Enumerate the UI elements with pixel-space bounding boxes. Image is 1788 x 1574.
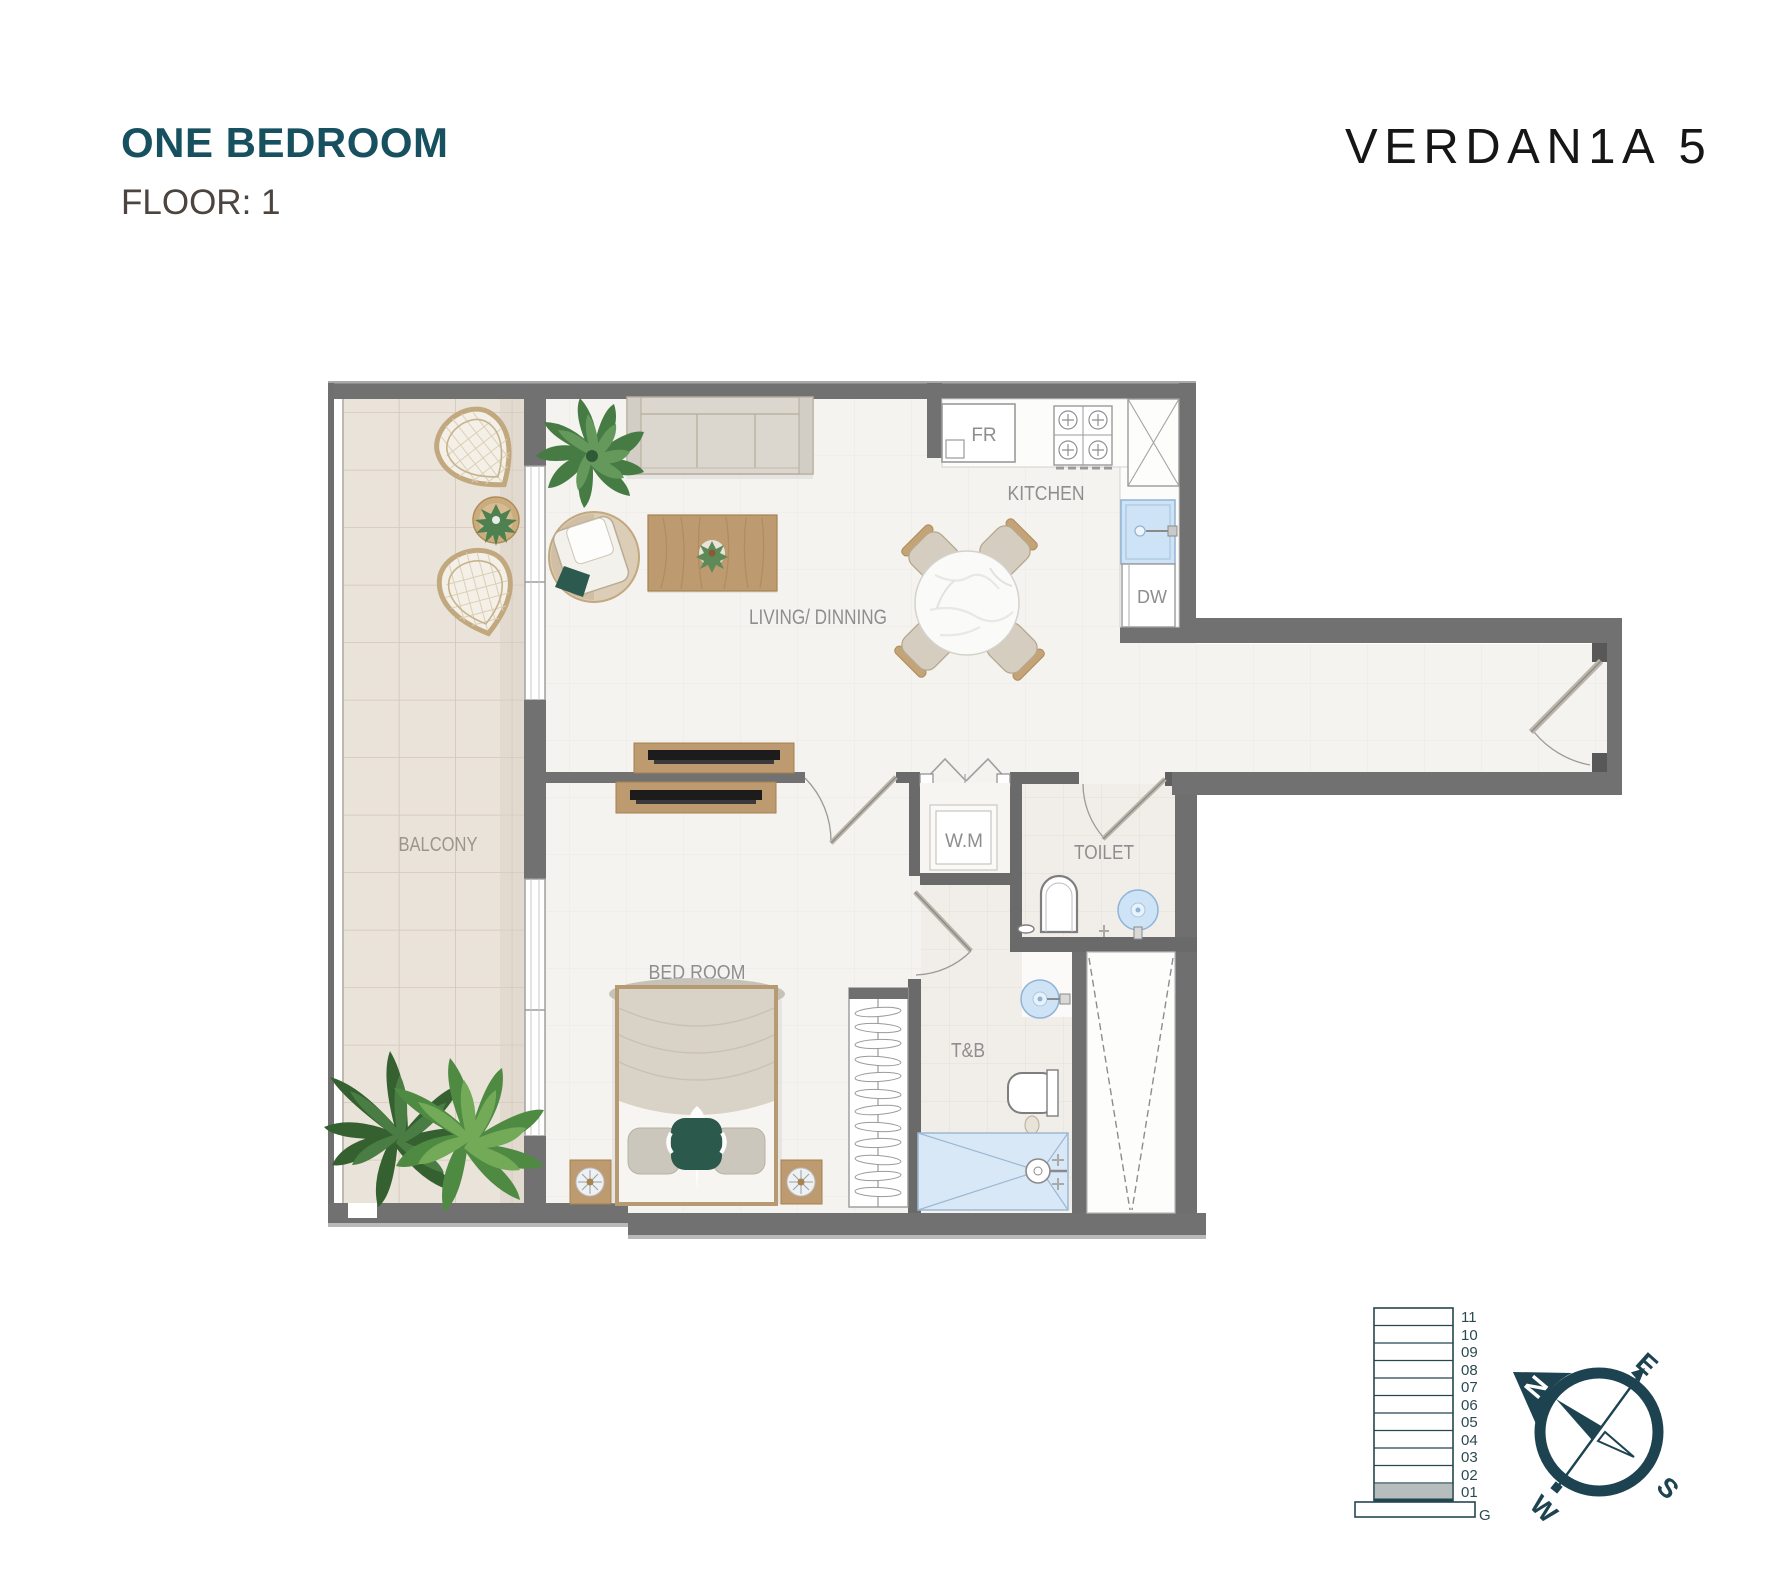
svg-text:FLOOR: 1: FLOOR: 1 xyxy=(121,183,280,222)
svg-text:VERDAN1A 5: VERDAN1A 5 xyxy=(1345,120,1712,174)
svg-text:10: 10 xyxy=(1461,1327,1478,1344)
svg-text:06: 06 xyxy=(1461,1397,1478,1414)
svg-text:02: 02 xyxy=(1461,1467,1478,1484)
svg-text:T&B: T&B xyxy=(951,1040,985,1062)
svg-text:03: 03 xyxy=(1461,1449,1478,1466)
svg-text:LIVING/ DINNING: LIVING/ DINNING xyxy=(749,606,887,629)
svg-text:07: 07 xyxy=(1461,1379,1478,1396)
svg-text:ONE BEDROOM: ONE BEDROOM xyxy=(121,119,449,166)
svg-text:BALCONY: BALCONY xyxy=(399,834,478,856)
svg-text:DW: DW xyxy=(1137,587,1167,607)
svg-text:09: 09 xyxy=(1461,1344,1478,1361)
svg-text:01: 01 xyxy=(1461,1484,1478,1501)
svg-text:08: 08 xyxy=(1461,1362,1478,1379)
svg-text:FR: FR xyxy=(971,425,996,446)
svg-text:TOILET: TOILET xyxy=(1074,842,1134,864)
svg-text:11: 11 xyxy=(1461,1309,1477,1326)
svg-text:KITCHEN: KITCHEN xyxy=(1008,483,1085,505)
svg-text:W.M: W.M xyxy=(945,831,983,852)
svg-text:G: G xyxy=(1479,1507,1491,1524)
svg-text:04: 04 xyxy=(1461,1432,1478,1449)
svg-text:05: 05 xyxy=(1461,1414,1478,1431)
